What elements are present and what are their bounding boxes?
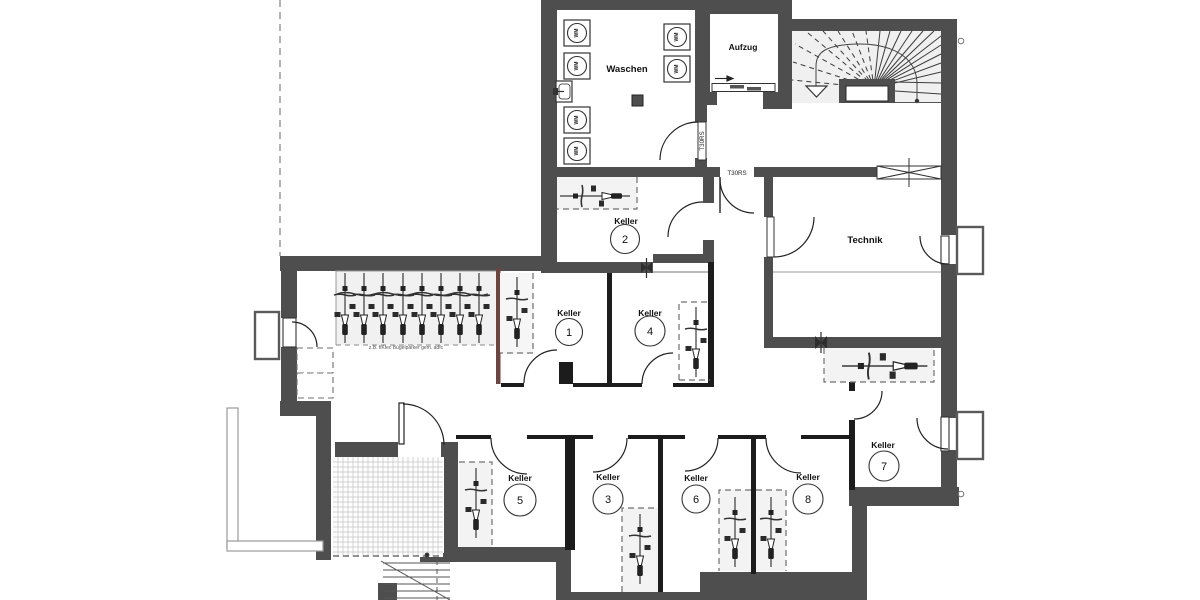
svg-text:8: 8	[805, 494, 811, 506]
svg-text:Keller: Keller	[596, 472, 620, 482]
svg-text:Technik: Technik	[847, 235, 883, 246]
svg-text:Keller: Keller	[684, 473, 708, 483]
svg-text:7: 7	[881, 461, 887, 473]
svg-text:Keller: Keller	[508, 473, 532, 483]
svg-text:5: 5	[517, 495, 523, 507]
svg-text:4: 4	[647, 326, 653, 338]
svg-text:Aufzug: Aufzug	[729, 42, 758, 52]
svg-text:T30RS: T30RS	[699, 131, 706, 150]
svg-text:Keller: Keller	[796, 472, 820, 482]
svg-text:3: 3	[605, 494, 611, 506]
svg-text:Keller: Keller	[557, 308, 581, 318]
svg-text:z.B. fiKtec Bügelparker gem. a: z.B. fiKtec Bügelparker gem. adfc	[369, 345, 444, 351]
svg-text:Keller: Keller	[871, 440, 895, 450]
svg-text:2: 2	[622, 234, 628, 246]
svg-text:Waschen: Waschen	[606, 64, 648, 75]
svg-text:T30RS: T30RS	[727, 170, 746, 177]
svg-text:1: 1	[566, 327, 572, 339]
svg-text:6: 6	[693, 494, 699, 506]
